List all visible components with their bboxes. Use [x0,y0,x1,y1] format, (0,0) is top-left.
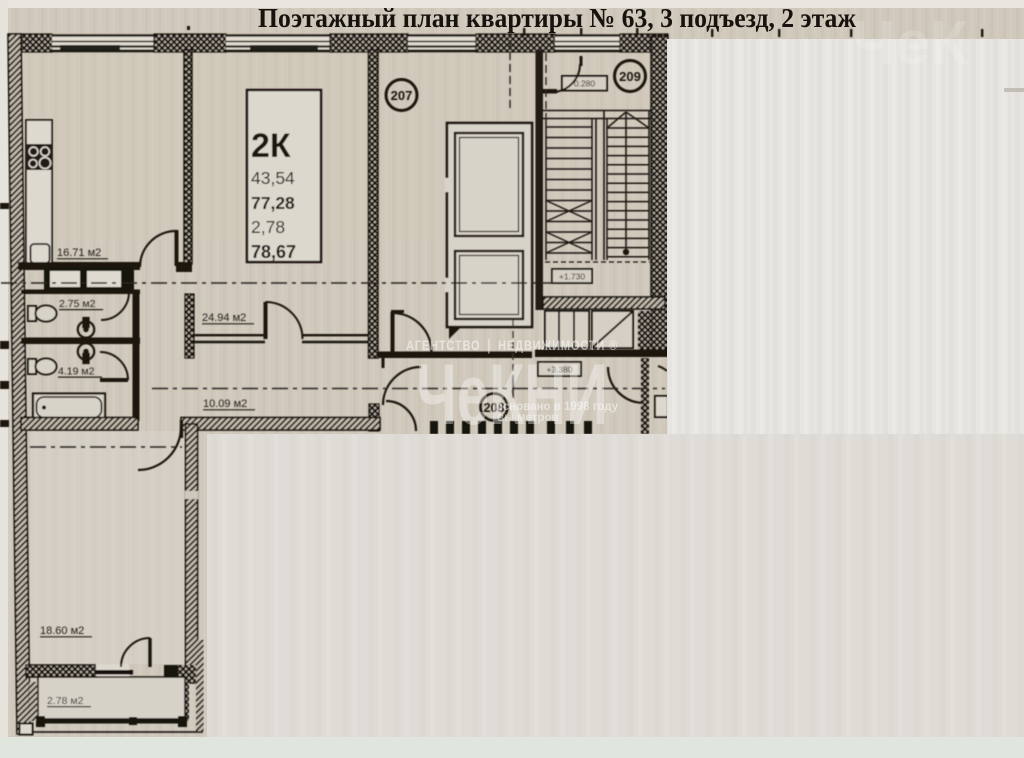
svg-text:Поэтажный план квартиры № 63,: Поэтажный план квартиры № 63, 3 подъезд,… [258,2,856,33]
svg-text:2.75 м2: 2.75 м2 [59,298,96,310]
svg-text:0.280: 0.280 [574,79,596,89]
svg-text:2,78: 2,78 [251,217,285,237]
svg-text:18.60 м2: 18.60 м2 [40,625,84,637]
svg-text:24.94 м2: 24.94 м2 [202,312,246,324]
svg-text:78,67: 78,67 [251,242,296,262]
svg-text:вы метров: вы метров [497,412,559,424]
svg-text:207: 207 [391,88,413,103]
svg-text:209: 209 [619,69,641,84]
svg-text:+1.730: +1.730 [559,272,586,282]
svg-text:2К: 2К [251,127,291,165]
svg-text:77,28: 77,28 [251,193,295,213]
svg-text:ЧеК: ЧеК [852,9,968,78]
svg-text:43,54: 43,54 [251,168,295,188]
svg-text:ЧеКНИ: ЧеКНИ [416,347,608,443]
svg-text:16.71 м2: 16.71 м2 [57,247,101,259]
svg-text:10.09 м2: 10.09 м2 [203,398,247,410]
svg-text:4.19 м2: 4.19 м2 [58,366,95,378]
svg-text:2.78 м2: 2.78 м2 [47,695,84,707]
